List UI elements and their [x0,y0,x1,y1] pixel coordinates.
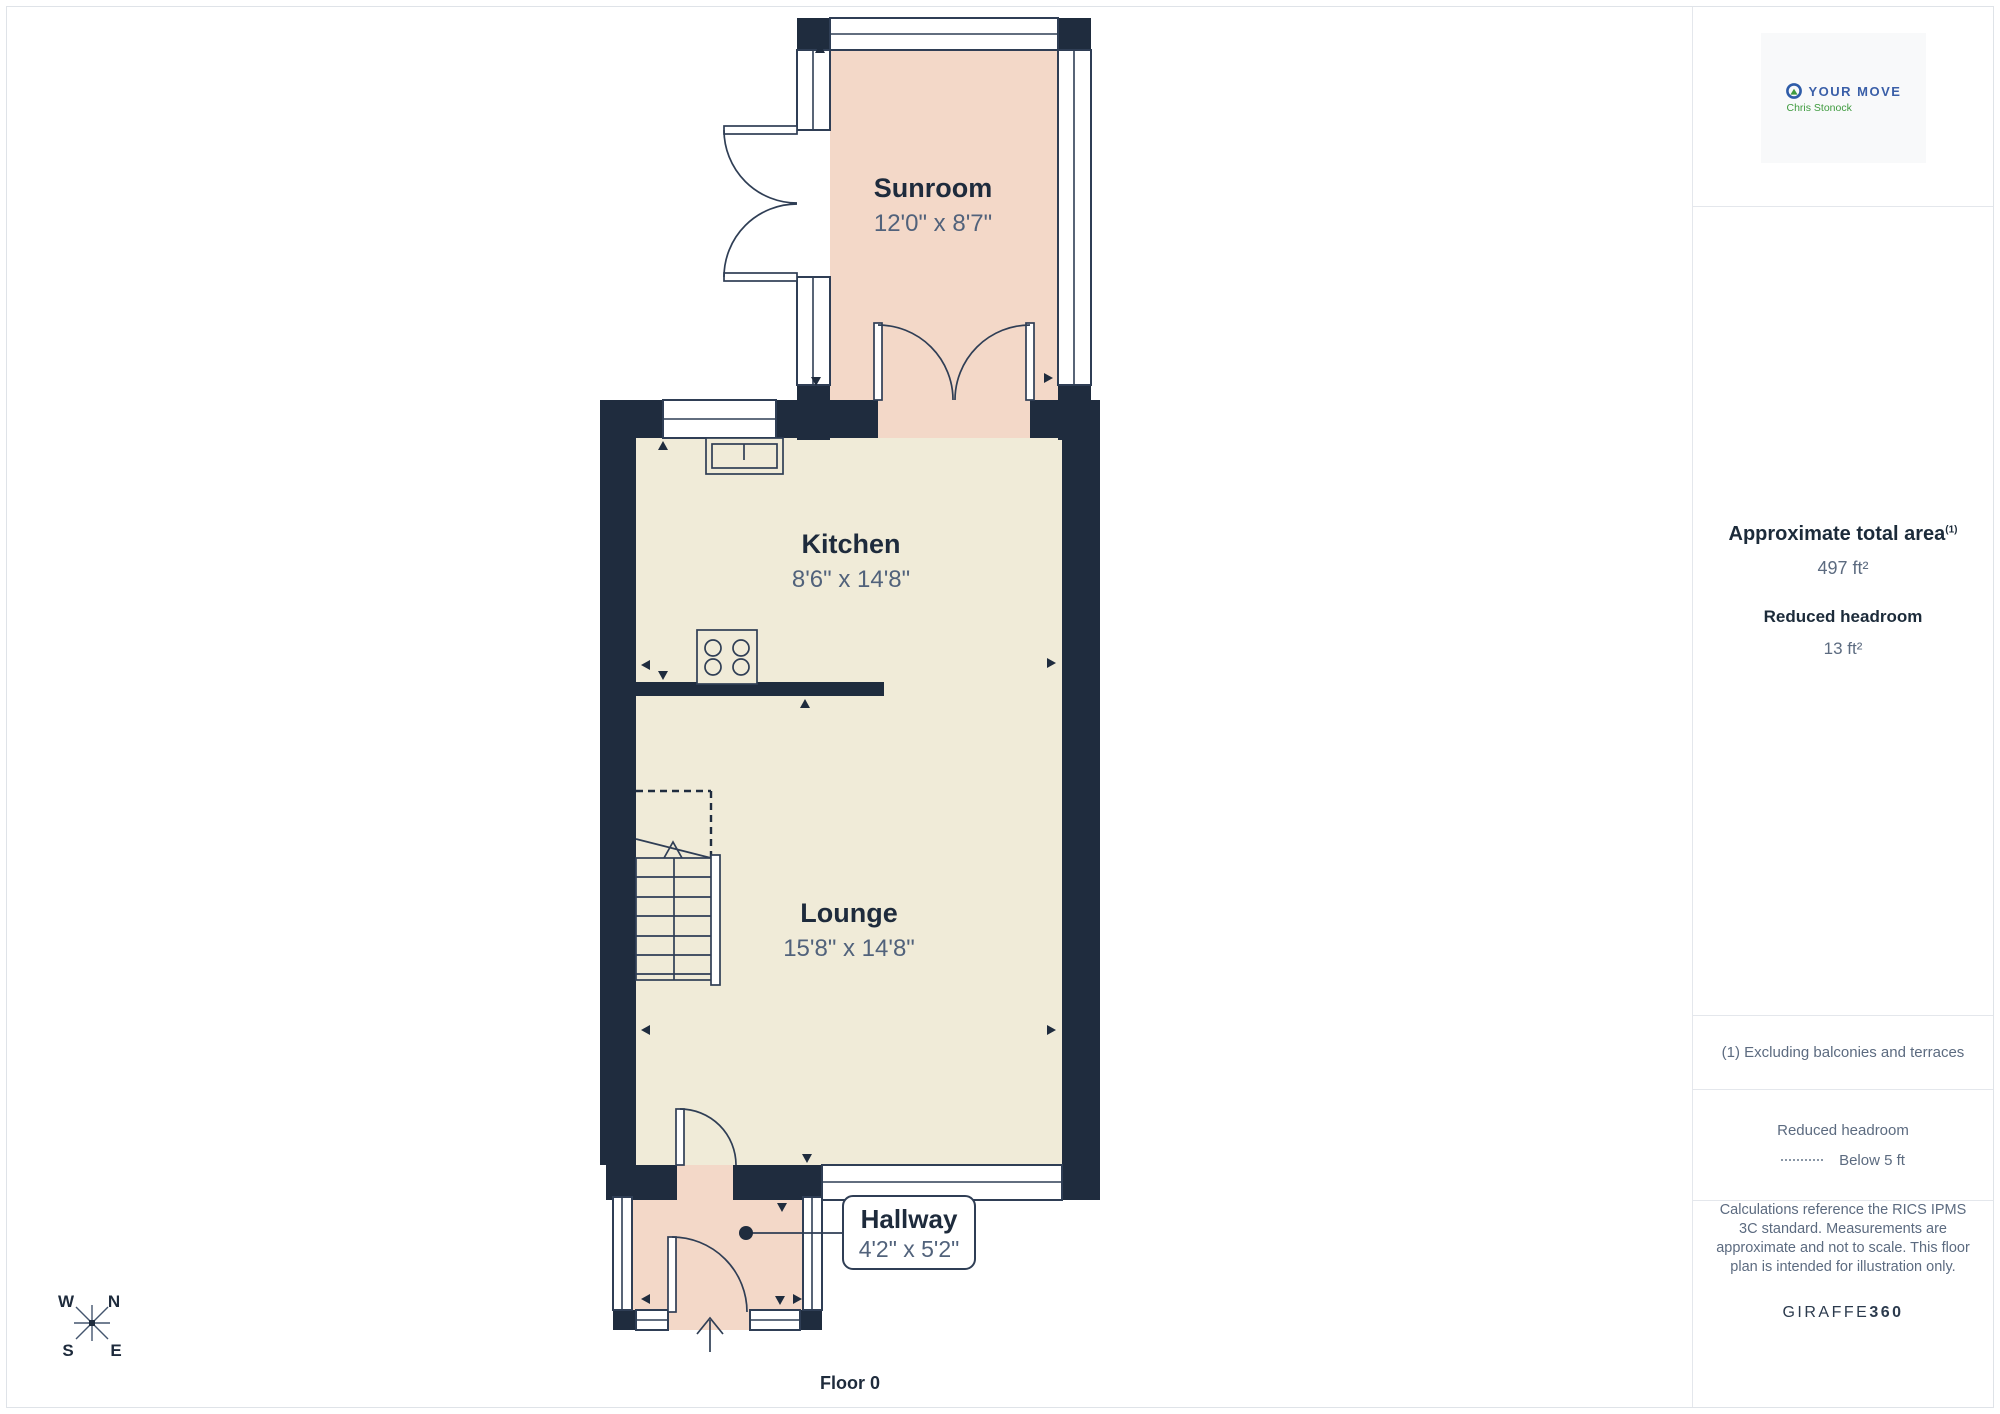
giraffe360-brand: GIRAFFE360 [1782,1304,1903,1322]
sunroom-dims: 12'0" x 8'7" [874,210,992,237]
lounge-dims: 15'8" x 14'8" [783,935,915,962]
compass-n: N [108,1292,120,1311]
reduced-headroom-value: 13 ft² [1824,639,1863,659]
compass-w: W [58,1292,75,1311]
legend-item-text: Below 5 ft [1839,1152,1905,1169]
sunroom-kitchen-door-right-leaf [1026,323,1034,400]
yourmove-logo-icon [1785,82,1803,100]
disclaimer-section: Calculations reference the RICS IPMS 3C … [1693,1200,1993,1322]
legend-section: Reduced headroom Below 5 ft [1693,1089,1993,1200]
area-summary-section: Approximate total area(1) 497 ft² Reduce… [1693,206,1993,1015]
french-door-bottom-leaf [724,273,797,281]
reduced-headroom-title: Reduced headroom [1764,607,1923,627]
callout-anchor-dot [739,1226,753,1240]
compass-s: S [62,1341,73,1360]
kitchen-dims: 8'6" x 14'8" [792,566,910,593]
footnote-section: (1) Excluding balconies and terraces [1693,1015,1993,1089]
compass-icon: W N S E [58,1292,122,1360]
total-area-title: Approximate total area(1) [1729,523,1958,546]
sunroom-kitchen-door-left-leaf [874,323,882,400]
floor-label: Floor 0 [820,1373,880,1393]
kitchen-label: Kitchen [801,529,900,559]
lounge-label: Lounge [800,898,897,928]
logo-section: YOUR MOVE Chris Stonock [1693,7,1993,206]
stair-rail [711,855,720,985]
hallway-dims: 4'2" x 5'2" [859,1236,960,1262]
kitchen-sink [706,438,783,474]
legend-title: Reduced headroom [1777,1122,1909,1139]
info-sidebar: YOUR MOVE Chris Stonock Approximate tota… [1692,7,1993,1407]
french-door-top-leaf [724,126,797,134]
footnote-text: (1) Excluding balconies and terraces [1722,1044,1965,1061]
sunroom-door-opening [878,400,1030,440]
total-area-footnote-marker: (1) [1945,524,1957,535]
compass-e: E [110,1341,121,1360]
agency-logo: YOUR MOVE Chris Stonock [1761,33,1926,163]
hallway-label: Hallway [861,1204,958,1234]
logo-agent-text: Chris Stonock [1761,102,1852,114]
logo-brand-text: YOUR MOVE [1809,84,1902,99]
total-area-value: 497 ft² [1817,558,1868,579]
disclaimer-text: Calculations reference the RICS IPMS 3C … [1715,1201,1971,1278]
kitchen-stove [697,630,757,684]
front-door-leaf [668,1237,676,1312]
lounge-hallway-door-leaf [676,1109,684,1165]
sunroom-label: Sunroom [874,173,993,203]
hallway-door-opening [677,1165,733,1200]
dotted-line-sample [1781,1159,1823,1161]
room-hallway-floor [632,1197,803,1310]
